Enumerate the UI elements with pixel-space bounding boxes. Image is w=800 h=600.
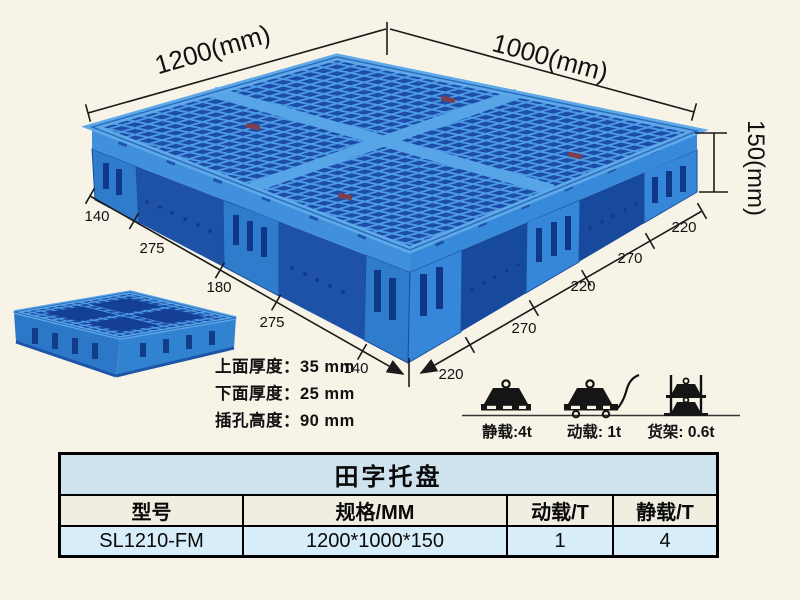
product-sheet: 1200(mm) 1000(mm) 150(mm) 140 275 180 27… [0,0,800,600]
small-pallet-illustration [14,292,236,376]
dim-left-2: 180 [206,279,231,296]
table-header-dynamic-load: 动载/T [506,494,612,525]
dim-left-3: 275 [259,314,284,331]
dim-right-0: 220 [671,219,696,236]
rack-load-icon [664,375,708,416]
dim-left-1: 275 [139,240,164,257]
table-cell-dynamic-load: 1 [506,525,612,555]
load-capacity-icons: 静载:4t 动载: 1t 货架: 0.6t [462,375,740,441]
dim-left-0: 140 [84,208,109,225]
dynamic-load-label: 动载: 1t [567,423,621,441]
table-cell-spec: 1200*1000*150 [242,525,506,555]
dim-label-150: 150(mm) [742,120,769,216]
dim-right-4: 220 [438,366,463,383]
static-load-label: 静载:4t [482,422,532,441]
table-title: 田字托盘 [61,455,716,494]
static-load-icon [481,380,531,410]
spec-bottom-thickness: 下面厚度：25 mm [215,383,355,403]
spec-fork-height: 插孔高度：90 mm [215,410,355,430]
table-header-static-load: 静载/T [612,494,716,525]
dim-label-1200: 1200(mm) [151,19,273,80]
dim-label-1000: 1000(mm) [489,27,611,87]
dim-right-3: 270 [511,320,536,337]
spec-top-thickness: 上面厚度：35 mm [215,356,355,376]
table-header-model: 型号 [61,494,242,525]
dim-right-2: 220 [570,278,595,295]
dynamic-load-icon [564,375,639,417]
table-cell-static-load: 4 [612,525,716,555]
spec-table: 田字托盘 型号 规格/MM 动载/T 静载/T SL1210-FM 1200*1… [58,452,719,558]
table-header-spec: 规格/MM [242,494,506,525]
dim-right-1: 270 [617,250,642,267]
rack-load-label: 货架: 0.6t [647,422,714,441]
thickness-specs: 上面厚度：35 mm 下面厚度：25 mm 插孔高度：90 mm [215,356,355,430]
table-cell-model: SL1210-FM [61,525,242,555]
